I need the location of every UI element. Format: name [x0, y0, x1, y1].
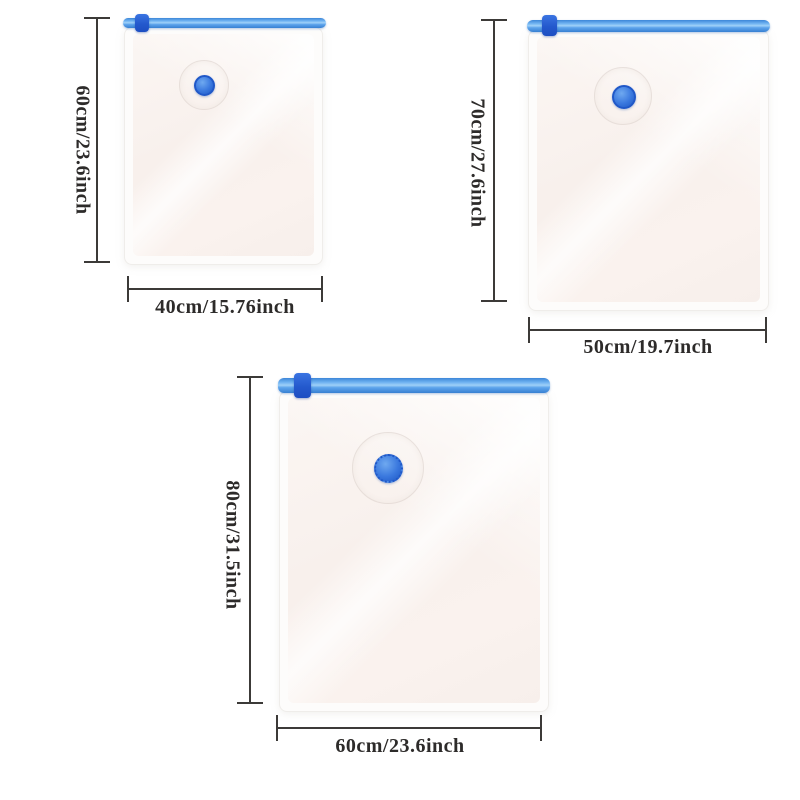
medium-bag-zipper-slider [542, 15, 557, 36]
medium-bag-height-dimension-line [493, 19, 495, 302]
small-bag-width-label: 40cm/15.76inch [155, 296, 295, 319]
large-bag-height-dimension-line [249, 376, 251, 704]
small-bag-height-dimension-line [96, 17, 98, 263]
medium-bag-vacuum-valve [612, 85, 636, 109]
small-bag-vacuum-valve [194, 75, 215, 96]
medium-bag-width-label: 50cm/19.7inch [583, 336, 712, 359]
large-bag-width-label: 60cm/23.6inch [335, 735, 464, 758]
small-bag-height-label: 60cm/23.6inch [71, 85, 94, 214]
large-bag-vacuum-valve [374, 454, 403, 483]
medium-bag-height-label: 70cm/27.6inch [466, 98, 489, 227]
small-bag-zipper-bar [123, 18, 326, 28]
large-bag-width-dimension-line [276, 727, 542, 729]
small-bag-film [133, 34, 314, 256]
medium-bag-zipper-bar [527, 20, 770, 32]
small-bag-width-dimension-line [127, 288, 323, 290]
large-bag-height-label: 80cm/31.5inch [221, 480, 244, 609]
small-bag-body [124, 27, 323, 265]
large-bag-zipper-slider [294, 373, 311, 398]
large-bag-body [279, 391, 549, 712]
medium-bag-film [537, 37, 760, 302]
small-bag-zipper-slider [135, 14, 149, 32]
large-bag-zipper-bar [278, 378, 550, 393]
medium-bag-width-dimension-line [528, 329, 767, 331]
medium-bag-body [528, 30, 769, 311]
size-chart-image: 60cm/23.6inch 40cm/15.76inch 70cm/27.6in… [0, 0, 800, 800]
